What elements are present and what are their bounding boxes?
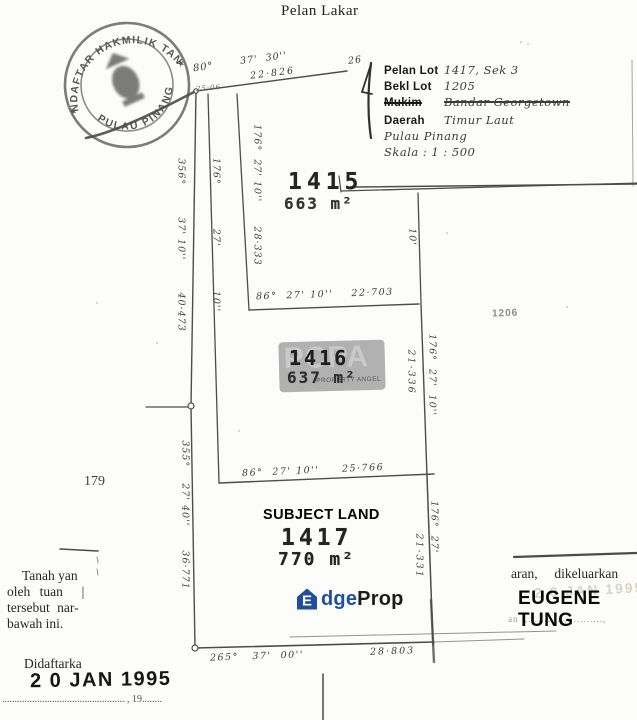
margin-tick-left xyxy=(60,549,98,551)
lot1415-west-edge xyxy=(237,94,249,310)
bearing-west-upper: 356° 37' 10'' 40·473 xyxy=(176,158,187,331)
distance-lot1417-east: 21·331 xyxy=(414,533,425,578)
info-value-negeri: Pulau Pinang xyxy=(384,129,467,143)
info-value-bekas-lot: 1205 xyxy=(444,79,475,93)
lot1415-area: 663 m² xyxy=(284,194,354,213)
lot1417-area: 770 m² xyxy=(278,549,355,570)
margin-text-line3: tersebut nar- xyxy=(7,600,79,616)
lot1415-number: 1415 xyxy=(288,169,363,195)
divider-1415-1416 xyxy=(249,304,419,310)
survey-plan-document: Pelan Lakar PENDAFTAR HAKMILIK TANAH PUL… xyxy=(0,0,637,720)
margin-text-right: aran, dikeluarkan xyxy=(511,566,618,582)
edgeprop-logo-letter: E xyxy=(302,593,312,610)
dotted-line-bottom: ........................................… xyxy=(2,694,162,705)
bearing-west-lower: 355° 27' 40'' 36·771 xyxy=(180,440,191,589)
margin-dashes-left xyxy=(97,557,98,575)
plan-info-box: Pelan Lot 1417, Sek 3 Bekl Lot 1205 Muki… xyxy=(358,55,634,185)
boundary-bottom-extension xyxy=(434,639,524,642)
lot1416-number: 1416 xyxy=(289,346,349,370)
lot1416-area: 637 m² xyxy=(287,368,357,387)
boundary-west-lower xyxy=(191,406,195,648)
registration-date-stamp: 2 0 JAN 1995 xyxy=(30,668,172,693)
info-label-mukim: Mukim xyxy=(384,97,440,109)
lot1417-east-edge-bold xyxy=(431,600,434,662)
road-line xyxy=(290,631,556,637)
station-marker-bottom xyxy=(192,645,198,651)
info-label-bekas-lot: Bekl Lot xyxy=(384,81,440,93)
margin-text-line1: Tanah yan xyxy=(22,568,78,584)
edgeprop-wordmark-blue: dge xyxy=(321,588,357,611)
edgeprop-wordmark-dark: Prop xyxy=(357,588,403,611)
bearing-lot1415-west: 176° 27' 10'' 28·333 xyxy=(252,124,263,265)
neighbor-lot-left: 179 xyxy=(84,474,105,490)
bearing-inner-line: 176° 27' 10'' xyxy=(211,158,222,312)
edgeprop-house-icon: E xyxy=(294,586,320,612)
agent-name: EUGENE TUNG xyxy=(518,588,637,632)
stamp-crest-icon xyxy=(101,48,147,108)
info-label-daerah: Daerah xyxy=(384,115,440,127)
margin-text-line4: bawah ini. xyxy=(7,616,63,632)
margin-text-line2: oleh tuan | xyxy=(7,584,84,600)
subject-land-label: SUBJECT LAND xyxy=(263,507,380,523)
info-value-pelan-lot: 1417, Sek 3 xyxy=(444,63,519,77)
stamp-star-right-icon: ★ xyxy=(175,57,186,69)
lot1415-east-edge xyxy=(418,193,421,304)
neighbor-lot-right: 1206 xyxy=(492,308,519,320)
edgeprop-logo: E dge Prop xyxy=(294,586,404,612)
info-label-pelan-lot: Pelan Lot xyxy=(384,65,440,77)
margin-rule-right xyxy=(514,553,637,557)
station-marker-mid xyxy=(188,403,194,409)
info-value-mukim: Bandar Georgetown xyxy=(444,95,570,109)
info-value-daerah: Timur Laut xyxy=(444,113,514,127)
bearing-lot1415-east: 10' xyxy=(407,228,418,246)
stamp-arc-bottom-text: PULAU PINANG xyxy=(93,80,187,146)
distance-bottom: 28·803 xyxy=(370,645,416,658)
bearing-lot1417-east: 176° 27' xyxy=(429,501,440,554)
info-value-skala: Skala : 1 : 500 xyxy=(384,145,475,159)
svg-text:PULAU PINANG: PULAU PINANG xyxy=(93,80,187,146)
lot1417-number: 1417 xyxy=(281,525,352,551)
bearing-lot1416-east: 176° 27' 10'' xyxy=(427,334,438,416)
distance-lot1416-east: 21·336 xyxy=(406,349,417,394)
